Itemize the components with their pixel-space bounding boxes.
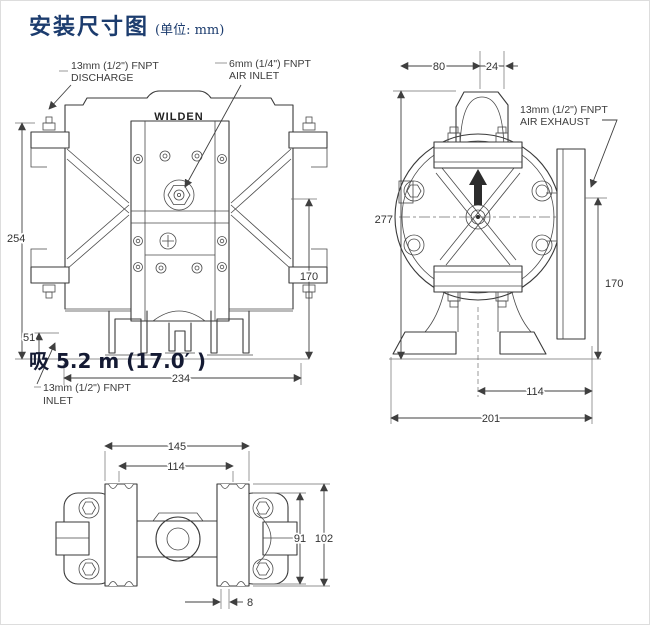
dim-top-foot-outer-width: 145 [168, 441, 186, 453]
dim-side-foot-span: 114 [526, 386, 544, 398]
dim-side-muffler-width: 24 [486, 61, 498, 73]
front-view-drawing: WILDEN 254 51 170 234 13mm (1/2") FNPT D… [7, 58, 327, 407]
discharge-label-line2: DISCHARGE [71, 72, 133, 84]
inlet-label-line1: 13mm (1/2") FNPT [43, 382, 131, 394]
dim-front-overall-width: 234 [172, 373, 190, 385]
dim-top-bolt-span: 114 [167, 461, 185, 473]
dim-side-muffler-offset: 80 [433, 61, 445, 73]
page: 安装尺寸图(单位: mm) [0, 0, 650, 625]
air-inlet-label-line2: AIR INLET [229, 70, 280, 82]
drawing-canvas: WILDEN 254 51 170 234 13mm (1/2") FNPT D… [1, 1, 650, 625]
dim-top-slot-width: 8 [247, 597, 253, 609]
discharge-label-line1: 13mm (1/2") FNPT [71, 60, 159, 72]
top-view-drawing: 145 114 91 102 8 [56, 441, 333, 609]
dim-front-foot-height: 51 [23, 332, 35, 344]
dim-side-overall-height: 277 [375, 214, 393, 226]
inlet-label-line2: INLET [43, 395, 73, 407]
air-exhaust-label-line2: AIR EXHAUST [520, 116, 591, 128]
flow-direction-arrow [469, 169, 487, 205]
dim-side-exhaust-height: 170 [605, 278, 623, 290]
air-exhaust-label-line1: 13mm (1/2") FNPT [520, 104, 608, 116]
side-view-drawing: 80 24 277 170 13mm (1/2") FNPT AIR EXHAU… [375, 51, 624, 425]
dim-top-body-depth: 91 [294, 533, 306, 545]
suction-lift-overlay-text: 吸 5.2 m (17.0′ ) [29, 349, 206, 373]
dim-front-overall-height: 254 [7, 233, 25, 245]
air-inlet-label-line1: 6mm (1/4") FNPT [229, 58, 311, 70]
dim-top-overall-depth: 102 [315, 533, 333, 545]
dim-front-port-height: 170 [300, 271, 318, 283]
brand-logo-text: WILDEN [154, 111, 203, 123]
dim-side-overall-width: 201 [482, 413, 500, 425]
